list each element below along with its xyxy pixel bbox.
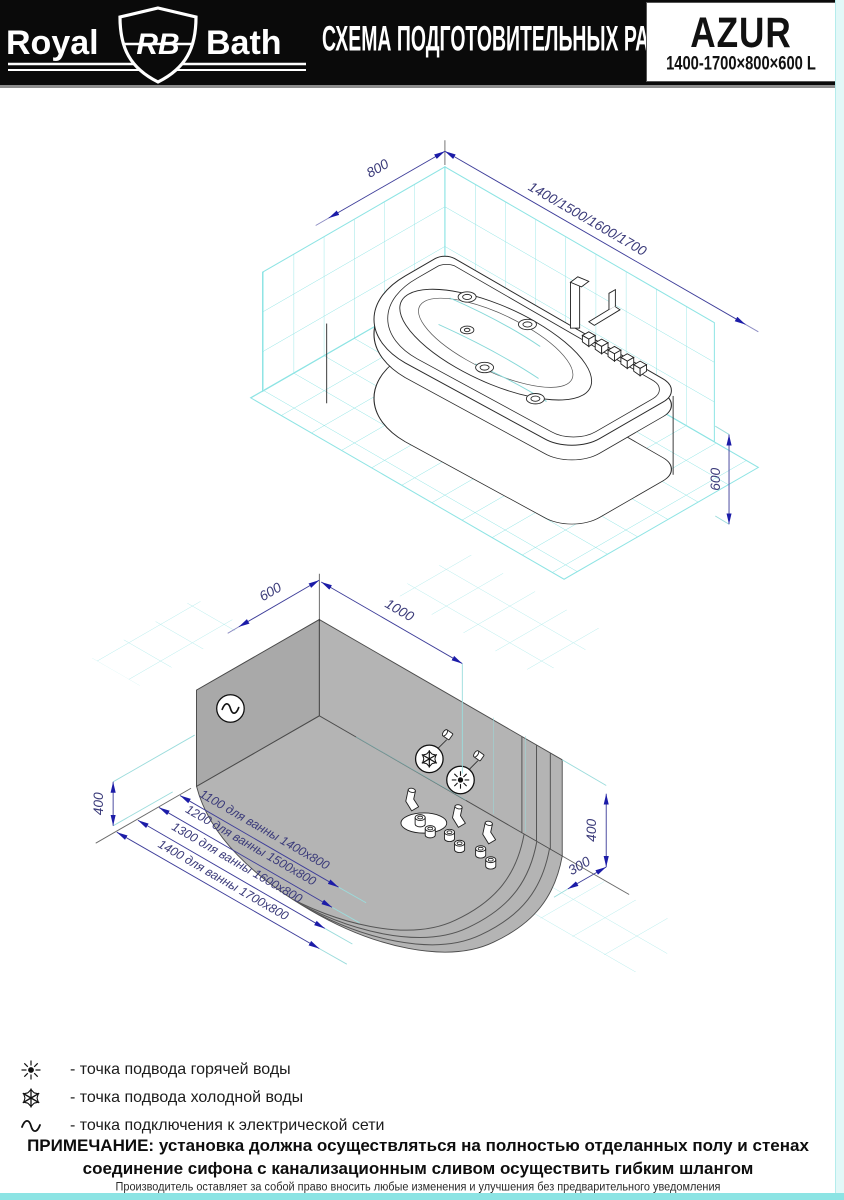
model-size: 1400-1700×800×600 L	[655, 54, 828, 76]
note-line-2: соединение сифона с канализационным слив…	[0, 1157, 836, 1180]
note-title: ПРИМЕЧАНИЕ:	[27, 1136, 154, 1155]
brand-left-text: Royal	[6, 24, 99, 62]
tile-patch-left	[92, 598, 243, 685]
installation-scheme-drawing: 800 1400/1500/1600/1700 600	[0, 88, 844, 1054]
svg-text:RB: RB	[136, 28, 179, 61]
dim-height-600: 600	[708, 468, 723, 491]
page-edge-right	[835, 0, 844, 1200]
legend: - точка подвода горячей воды - точка под…	[14, 1056, 385, 1140]
model-name: AZUR	[652, 9, 831, 57]
legend-label: - точка подвода холодной воды	[70, 1089, 303, 1107]
electric-point	[217, 695, 244, 722]
legend-label: - точка подвода горячей воды	[70, 1061, 291, 1079]
note: ПРИМЕЧАНИЕ: установка должна осуществлят…	[0, 1134, 836, 1180]
header-bar: Royal RB Bath СХЕМА ПОДГОТОВИТЕЛЬНЫХ РАБ…	[0, 0, 844, 85]
bottom-view-prepared-zone: 600 1000 400 1100 для ванны 1400x800 120…	[91, 551, 698, 973]
legend-row-cold: - точка подвода холодной воды	[14, 1084, 385, 1112]
document-title: СХЕМА ПОДГОТОВИТЕЛЬНЫХ РАБОТ	[322, 19, 690, 59]
dim-height-right-400: 400	[584, 819, 599, 842]
top-view-tub-in-corner: 800 1400/1500/1600/1700 600	[251, 140, 759, 579]
brand-logo: Royal RB Bath	[6, 4, 311, 84]
brand-right-text: Bath	[206, 24, 282, 62]
hot-water-icon	[14, 1057, 48, 1083]
page-edge-bottom	[0, 1193, 844, 1200]
dim-width-800: 800	[364, 156, 392, 181]
cold-water-icon	[14, 1085, 48, 1111]
legend-row-hot: - точка подвода горячей воды	[14, 1056, 385, 1084]
dim-wall-left-600: 600	[257, 579, 285, 604]
dim-height-left-400: 400	[91, 792, 106, 815]
page: { "header": { "brand_left": "Royal", "lo…	[0, 0, 844, 1200]
model-box: AZUR 1400-1700×800×600 L	[646, 2, 836, 82]
note-line-1: ПРИМЕЧАНИЕ: установка должна осуществлят…	[0, 1134, 836, 1157]
legend-label: - точка подключения к электрической сети	[70, 1117, 385, 1135]
footer-disclaimer: Производитель оставляет за собой право в…	[21, 1181, 815, 1194]
